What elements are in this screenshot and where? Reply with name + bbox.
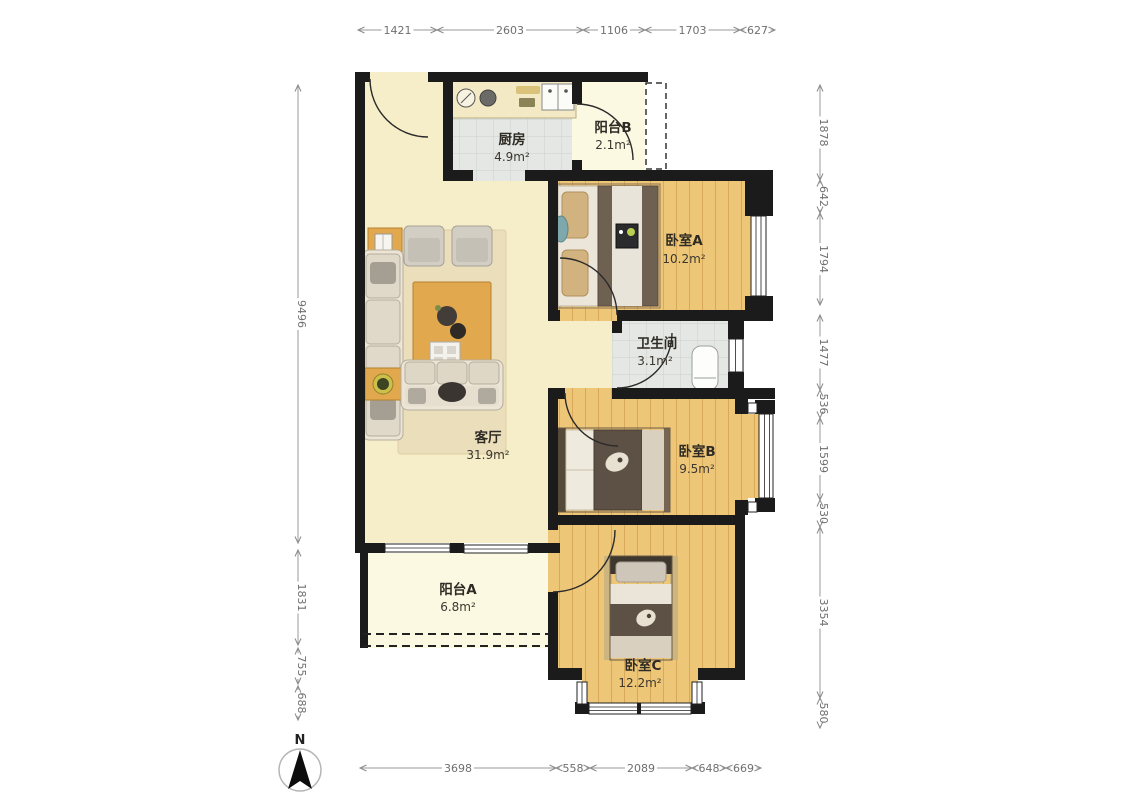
- wall-bedroom-a-bottom-corner: [548, 310, 560, 321]
- dim-label-top-0: 1421: [384, 24, 412, 37]
- wall-bedroom-b-bay-corner-top: [755, 400, 775, 414]
- bed-c-foot-band: [610, 636, 672, 658]
- kitchen-area: 4.9m²: [494, 150, 530, 164]
- dim-label-right-5: 1599: [817, 445, 830, 473]
- bed-b-foot-band: [642, 430, 664, 510]
- wall-kitchen-balconyb-top: [572, 82, 582, 104]
- kitchen-fixtures: [448, 80, 576, 118]
- dim-label-left-3: 688: [295, 693, 308, 714]
- wall-kitchen-bottom-left: [443, 170, 473, 181]
- bedroom-c-bed: [604, 556, 678, 660]
- bedroom-b-area: 9.5m²: [679, 462, 715, 476]
- bedroom-c-window-mid-tick: [637, 703, 641, 714]
- dim-label-right-7: 3354: [817, 599, 830, 627]
- wall-bedroom-b-bay-stub-bottom: [735, 500, 748, 515]
- wall-bedroom-c-right: [735, 525, 745, 668]
- sofa-bottom-dark-pillow: [438, 382, 466, 402]
- bed-a-tray: [616, 224, 638, 248]
- floor-plan-page: 厨房 4.9m² 阳台B 2.1m² 卧室A 10.2m² 卫生间 3.1m² …: [0, 0, 1125, 800]
- dim-label-bottom-3: 648: [699, 762, 720, 775]
- wall-bedroom-c-left-top: [548, 525, 558, 530]
- bed-c-pillow: [616, 562, 666, 582]
- table-decor-leaf: [435, 305, 441, 311]
- tray-item-2: [447, 346, 456, 354]
- entrance-threshold: [370, 72, 428, 82]
- bathroom-window: [729, 339, 743, 372]
- wall-bedroom-c-left: [548, 592, 558, 668]
- bedroom-b-window-pane: [759, 414, 773, 498]
- balcony-b-ac-platform: [646, 83, 666, 169]
- kitchen-opening-threshold: [473, 170, 525, 181]
- wall-bedroom-c-bottom-left: [548, 668, 582, 680]
- living-room-area: 31.9m²: [466, 448, 509, 462]
- wall-balcony-a-top-right: [528, 543, 560, 553]
- living-room-furniture: [363, 226, 506, 454]
- dim-label-right-8: 580: [817, 703, 830, 724]
- dim-label-right-2: 1794: [817, 245, 830, 273]
- balcony-b-area: 2.1m²: [595, 138, 631, 152]
- counter-item-1: [516, 86, 540, 94]
- bed-b-decor-dot: [618, 458, 623, 463]
- table-decor-2: [450, 323, 466, 339]
- bedroom-c-label: 卧室C: [625, 657, 662, 674]
- sink-drain-2: [564, 89, 568, 93]
- bedroom-a-door-threshold: [560, 310, 617, 321]
- wall-bedroom-b-left: [548, 399, 558, 515]
- bedroom-a-bay-window: [751, 216, 766, 296]
- dim-label-top-1: 2603: [496, 24, 524, 37]
- balcony-a-label: 阳台A: [439, 581, 477, 598]
- dim-label-left-0: 9496: [295, 300, 308, 328]
- bed-b-foot-rail: [664, 428, 670, 512]
- plant: [377, 378, 389, 390]
- bed-a-tray-dot-green: [627, 228, 635, 236]
- wall-bedroom-c-bottom-right: [698, 668, 745, 680]
- tray-item-1: [434, 346, 443, 354]
- wall-bedroom-a-bay-top: [745, 170, 773, 216]
- armchair-1: [404, 226, 444, 266]
- bathroom-label: 卫生间: [637, 335, 678, 352]
- sink-drain-1: [548, 89, 552, 93]
- bedroom-a-window-pane: [751, 216, 766, 296]
- bedroom-b-bed: [556, 428, 670, 512]
- bedroom-b-label: 卧室B: [678, 443, 715, 460]
- dim-label-left-1: 1831: [295, 584, 308, 612]
- dim-label-bottom-4: 669: [733, 762, 754, 775]
- side-table-bottom: [365, 368, 401, 400]
- kitchen-label: 厨房: [499, 131, 526, 148]
- compass: N: [279, 733, 321, 791]
- wall-bedroom-a-top: [525, 170, 773, 181]
- bedroom-b-window-bottom-pane: [748, 502, 757, 512]
- wall-bedroom-a-bay-bottom: [745, 296, 773, 321]
- bedroom-a-label: 卧室A: [665, 232, 703, 249]
- dim-label-right-3: 1477: [817, 339, 830, 367]
- bedroom-b-window-top-pane: [748, 403, 757, 413]
- sofa-bottom: [401, 360, 503, 410]
- bathroom-fixtures: [692, 346, 718, 390]
- dim-label-right-6: 530: [817, 503, 830, 524]
- dim-label-bottom-1: 558: [563, 762, 584, 775]
- balcony-b-label: 阳台B: [594, 119, 631, 136]
- wall-balcony-a-top-mid: [450, 543, 464, 553]
- bed-a-pillow-2: [562, 250, 588, 296]
- bathroom-area: 3.1m²: [637, 354, 673, 368]
- dim-label-right-4: 536: [817, 394, 830, 415]
- wall-bedroom-a-left: [548, 181, 558, 310]
- balcony-a-area: 6.8m²: [440, 600, 476, 614]
- armchair-1-seat: [408, 238, 440, 262]
- bedroom-a-bed: [552, 184, 660, 308]
- wall-balcony-a-top-left: [355, 543, 385, 553]
- bathroom-window-pane: [729, 339, 743, 372]
- compass-north-label: N: [295, 733, 306, 748]
- armchair-2: [452, 226, 492, 266]
- wall-bedroom-b-top-left: [548, 388, 565, 399]
- sofa-bottom-back-1: [405, 362, 435, 384]
- floor-plan-svg: 厨房 4.9m² 阳台B 2.1m² 卧室A 10.2m² 卫生间 3.1m² …: [0, 0, 1125, 800]
- toilet: [692, 346, 718, 390]
- wall-bedroom-bc-divider: [548, 515, 745, 525]
- bedroom-c-door-threshold: [548, 530, 558, 592]
- sofa-left-cushion-2: [366, 300, 400, 344]
- wall-bathroom-right-top: [728, 321, 744, 339]
- wall-bedroom-b-top: [618, 388, 775, 399]
- sofa-left: [363, 250, 403, 440]
- sofa-bottom-back-2: [437, 362, 467, 384]
- counter-item-2: [519, 98, 535, 107]
- dim-label-bottom-2: 2089: [627, 762, 655, 775]
- dim-label-left-2: 755: [295, 656, 308, 677]
- bathroom-door-threshold: [612, 333, 622, 388]
- dim-label-top-3: 1703: [679, 24, 707, 37]
- bed-a-tray-dot-white: [619, 230, 623, 234]
- sofa-bottom-pillow-2: [478, 388, 496, 404]
- sofa-bottom-back-3: [469, 362, 499, 384]
- wall-bedroom-b-bay-corner-bottom: [755, 498, 775, 512]
- dim-label-right-1: 642: [817, 186, 830, 207]
- dim-label-top-4: 627: [747, 24, 768, 37]
- wall-kitchen-balconyb-bottom: [572, 160, 582, 170]
- sofa-left-pillow-1: [370, 262, 396, 284]
- dim-label-bottom-0: 3698: [444, 762, 472, 775]
- sofa-left-pillow-2: [370, 398, 396, 420]
- wall-bathroom-left-top: [612, 321, 622, 333]
- wall-left: [355, 72, 365, 553]
- bedroom-b-door-threshold: [565, 388, 618, 399]
- bedroom-a-area: 10.2m²: [662, 252, 705, 266]
- bed-c-sheet: [610, 584, 672, 604]
- living-room-label: 客厅: [474, 429, 502, 446]
- dim-label-right-0: 1878: [817, 119, 830, 147]
- bed-c-decor-dot: [647, 614, 651, 618]
- bedroom-c-area: 12.2m²: [618, 676, 661, 690]
- wall-bedroom-b-bay-stub-top: [735, 399, 748, 414]
- wall-kitchen-left: [443, 72, 453, 170]
- dim-label-top-2: 1106: [600, 24, 628, 37]
- armchair-2-seat: [456, 238, 488, 262]
- sofa-bottom-pillow-1: [408, 388, 426, 404]
- wall-top: [428, 72, 648, 82]
- stove-burner-2: [480, 90, 496, 106]
